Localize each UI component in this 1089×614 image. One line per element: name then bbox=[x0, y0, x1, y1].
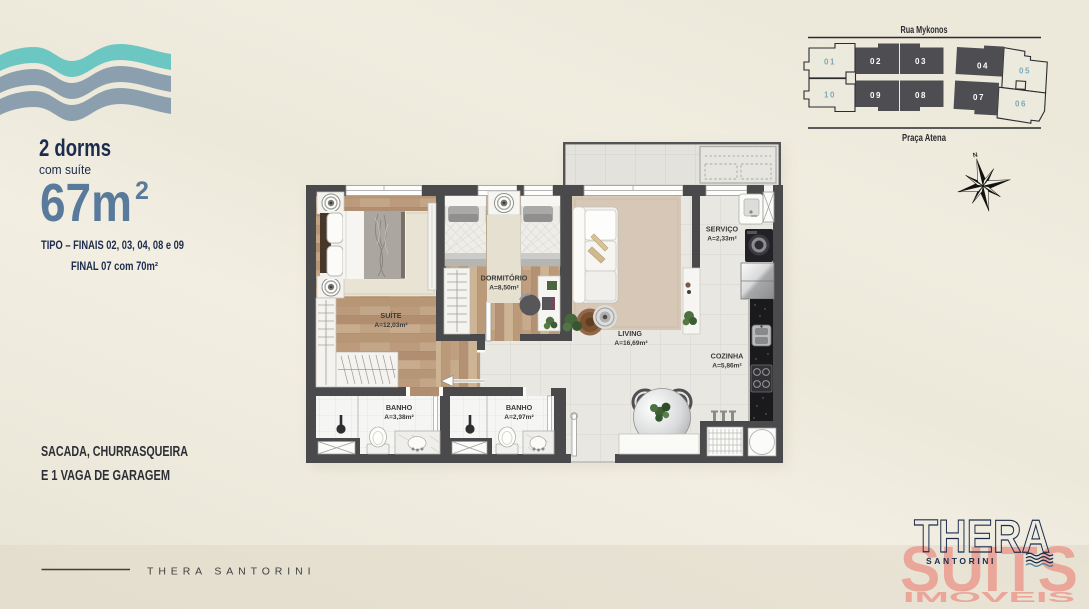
svg-text:Praça Atena: Praça Atena bbox=[902, 133, 946, 144]
svg-text:SANTORINI: SANTORINI bbox=[926, 556, 996, 566]
svg-text:10: 10 bbox=[824, 91, 836, 100]
svg-text:COZINHA: COZINHA bbox=[711, 352, 744, 361]
svg-text:2 dorms: 2 dorms bbox=[39, 135, 111, 162]
svg-text:BANHO: BANHO bbox=[386, 403, 413, 412]
svg-text:05: 05 bbox=[1019, 67, 1031, 76]
svg-text:Rua Mykonos: Rua Mykonos bbox=[901, 25, 948, 36]
svg-text:2: 2 bbox=[135, 177, 149, 205]
svg-text:E 1 VAGA DE GARAGEM: E 1 VAGA DE GARAGEM bbox=[41, 468, 170, 484]
svg-text:02: 02 bbox=[870, 57, 882, 66]
svg-text:A=8,50m²: A=8,50m² bbox=[489, 285, 519, 292]
svg-text:SERVIÇO: SERVIÇO bbox=[706, 225, 739, 234]
svg-text:A=2,33m²: A=2,33m² bbox=[707, 236, 737, 243]
svg-text:THERA SANTORINI: THERA SANTORINI bbox=[147, 566, 315, 578]
svg-text:IMÓVEIS: IMÓVEIS bbox=[903, 588, 1076, 606]
svg-text:A=2,97m²: A=2,97m² bbox=[504, 414, 534, 421]
svg-text:A=3,38m²: A=3,38m² bbox=[384, 414, 414, 421]
svg-text:A=16,69m²: A=16,69m² bbox=[614, 340, 648, 347]
svg-text:06: 06 bbox=[1015, 100, 1027, 109]
svg-text:LIVING: LIVING bbox=[618, 329, 642, 338]
svg-text:04: 04 bbox=[977, 62, 989, 71]
svg-text:DORMITÓRIO: DORMITÓRIO bbox=[481, 274, 528, 283]
svg-text:THERA: THERA bbox=[914, 510, 1050, 562]
svg-text:SACADA, CHURRASQUEIRA: SACADA, CHURRASQUEIRA bbox=[41, 444, 188, 460]
svg-text:TIPO – FINAIS 02, 03, 04, 08 e: TIPO – FINAIS 02, 03, 04, 08 e 09 bbox=[41, 240, 184, 252]
svg-text:67m: 67m bbox=[40, 173, 132, 233]
svg-text:08: 08 bbox=[915, 91, 927, 100]
svg-text:03: 03 bbox=[915, 57, 927, 66]
svg-text:A=5,86m²: A=5,86m² bbox=[712, 363, 742, 370]
svg-text:09: 09 bbox=[870, 91, 882, 100]
svg-text:07: 07 bbox=[973, 93, 985, 102]
svg-text:01: 01 bbox=[824, 58, 836, 67]
svg-text:SUÍTE: SUÍTE bbox=[380, 311, 401, 320]
svg-text:BANHO: BANHO bbox=[506, 403, 533, 412]
svg-text:A=12,03m²: A=12,03m² bbox=[374, 322, 408, 329]
svg-text:FINAL 07 com 70m²: FINAL 07 com 70m² bbox=[71, 261, 158, 273]
